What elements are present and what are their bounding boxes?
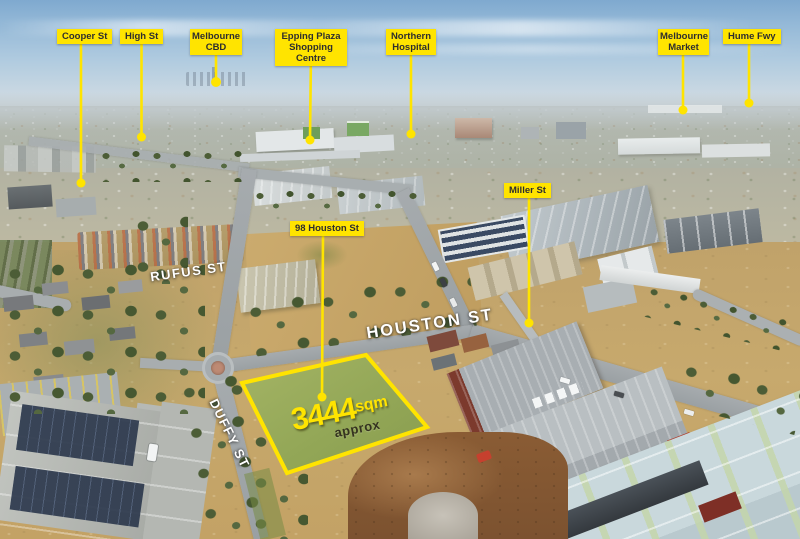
industrial-shed xyxy=(55,197,96,218)
label-high-st: High St xyxy=(120,29,163,44)
apartment-block xyxy=(556,122,586,139)
tree-row xyxy=(250,188,420,214)
green-building xyxy=(347,121,369,136)
apartment-block xyxy=(455,118,492,138)
gravel-pile xyxy=(408,492,478,539)
label-epping-plaza: Epping Plaza Shopping Centre xyxy=(275,29,347,66)
green-building xyxy=(303,127,320,139)
roundabout-centre xyxy=(211,361,225,375)
label-northern-hospital: Northern Hospital xyxy=(386,29,436,55)
aerial-photo-stage: Cooper St High St Melbourne CBD Epping P… xyxy=(0,0,800,539)
apartment-block xyxy=(521,127,539,139)
market-warehouse xyxy=(702,143,770,157)
label-cooper-st: Cooper St xyxy=(57,29,112,44)
label-melbourne-market: Melbourne Market xyxy=(658,29,709,55)
tree-row xyxy=(96,148,248,182)
market-warehouse xyxy=(618,137,700,154)
label-98-houston-st: 98 Houston St xyxy=(290,221,364,236)
cbd-skyline xyxy=(186,72,248,86)
parcel-area-unit: sqm xyxy=(354,394,389,416)
industrial-shed xyxy=(7,184,52,209)
cbd-tower xyxy=(212,67,217,79)
label-miller-st: Miller St xyxy=(504,183,551,198)
label-hume-fwy: Hume Fwy xyxy=(723,29,781,44)
shopping-centre-roof xyxy=(256,128,335,152)
distant-market-strip xyxy=(648,105,722,113)
label-melbourne-cbd: Melbourne CBD xyxy=(190,29,242,55)
